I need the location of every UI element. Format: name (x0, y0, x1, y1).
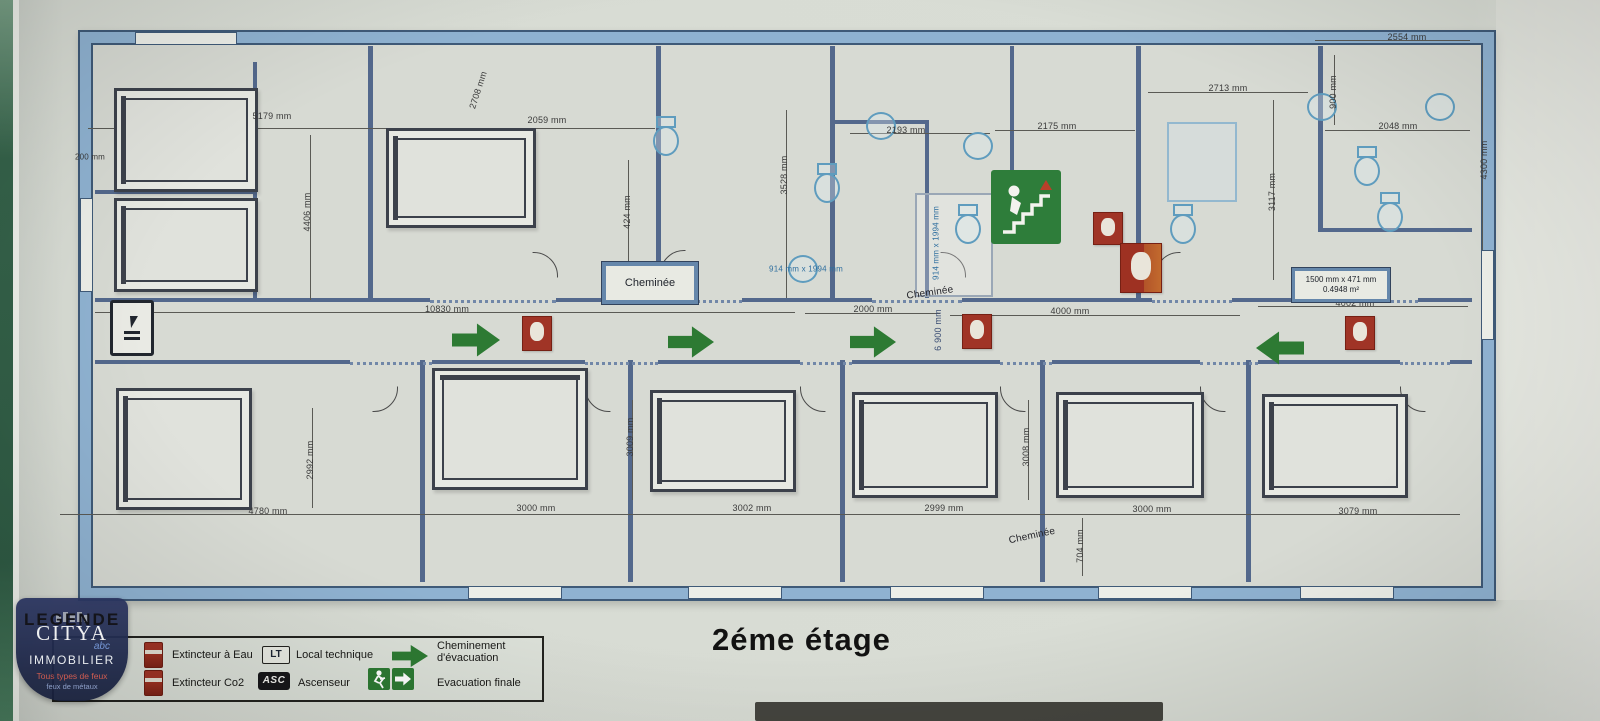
bed-mattress (862, 402, 988, 488)
window (688, 586, 782, 599)
dimension-label: 2000 mm (854, 304, 893, 314)
logo-tagline-1: Tous types de feux (37, 671, 108, 681)
evacuation-arrow-right (850, 325, 896, 359)
door-opening-dots (350, 362, 432, 365)
dimension-label: 424 mm (622, 195, 632, 229)
bed-pillow (123, 396, 128, 502)
interior-wall (1318, 46, 1323, 232)
dimension-label: 2713 mm (1209, 83, 1248, 93)
extinguisher-co2-icon (144, 670, 163, 696)
door-opening-dots (1200, 362, 1258, 365)
lightning-bolt-icon (126, 316, 138, 328)
window (1098, 586, 1192, 599)
dimension-label: 6 900 mm (933, 309, 943, 351)
photo-light-corner (1496, 0, 1600, 600)
dimension-label: 4406 mm (302, 193, 312, 232)
door-swing-arc (350, 364, 398, 412)
room-area-label-box: 1500 mm x 471 mm 0.4948 m² (1292, 268, 1390, 302)
logo-abc: abc (94, 643, 110, 651)
bed-pillow (657, 398, 662, 484)
fixture-bowl (963, 132, 993, 160)
bed-pillow (859, 400, 864, 490)
bed-pillow (1269, 402, 1274, 490)
window (80, 198, 93, 292)
interior-wall (420, 360, 425, 582)
bed-mattress (660, 400, 786, 482)
dimension-label: 3079 mm (1339, 506, 1378, 516)
dimension-label: 200 mm (75, 153, 105, 162)
cheminee-label-box: Cheminée (602, 262, 698, 304)
bed (114, 88, 258, 192)
panel-line (124, 331, 140, 334)
bed (386, 128, 536, 228)
dimension-label: 914 mm x 1994 mm (932, 206, 941, 280)
interior-wall (1418, 298, 1472, 302)
floor-title: 2éme étage (712, 622, 891, 658)
extinguisher-marker (522, 316, 552, 351)
legend-label-local-technique: Local technique (296, 649, 373, 661)
dimension-label: 900 mm (1328, 75, 1338, 109)
dimension-label: 3002 mm (733, 503, 772, 513)
window (1300, 586, 1394, 599)
legend-label-evacuation-finale: Evacuation finale (437, 677, 521, 689)
dimension-label: 10830 mm (425, 304, 469, 314)
bed-mattress (442, 378, 578, 480)
bed (1056, 392, 1204, 498)
evacuation-arrow-right (668, 325, 714, 359)
exit-arrow-icon (392, 668, 414, 690)
window (1481, 250, 1494, 340)
dimension-line (950, 315, 1240, 316)
door-opening-dots (585, 362, 658, 365)
photo-bottom-dark-band (755, 702, 1163, 721)
bed-mattress (1066, 402, 1194, 488)
bed (114, 198, 258, 292)
sink-fixture (788, 255, 818, 295)
photo-edge-green-strip (0, 0, 13, 721)
interior-wall (962, 298, 1152, 302)
legend-title: LEGENDE (24, 610, 120, 630)
extinguisher-water-icon (144, 642, 163, 668)
bed-pillow (440, 375, 580, 380)
dimension-label: 914 mm x 1994 mm (769, 265, 843, 274)
fixture-bowl (1425, 93, 1455, 121)
logo-subtitle: IMMOBILIER (29, 653, 115, 667)
legend-label-cheminement: Cheminement d'évacuation (437, 640, 521, 664)
door-swing-arc (1200, 364, 1248, 412)
stairs-evacuation-sign (991, 170, 1061, 244)
window (468, 586, 562, 599)
bed (1262, 394, 1408, 498)
toilet-fixture (812, 163, 842, 203)
extinguisher-marker (1120, 243, 1162, 293)
door-opening-dots (1152, 300, 1232, 303)
interior-wall (1246, 360, 1251, 582)
fixture-bowl (1170, 214, 1196, 244)
evacuation-arrow-right (452, 322, 500, 358)
plan-overlay: 200 mm5179 mm2059 mm2708 mm2193 mm2175 m… (0, 0, 1600, 721)
dimension-label: 2999 mm (925, 503, 964, 513)
dimension-label: 3528 mm (779, 156, 789, 195)
sink-fixture (963, 132, 993, 172)
interior-wall (658, 360, 800, 364)
interior-wall (1258, 360, 1400, 364)
door-opening-dots (800, 362, 852, 365)
toilet-fixture (1375, 192, 1405, 232)
dimension-label: 3000 mm (517, 503, 556, 513)
dimension-label: 2175 mm (1038, 121, 1077, 131)
door-opening-dots (1400, 362, 1450, 365)
door-opening-dots (430, 300, 556, 303)
electrical-panel-icon (110, 300, 154, 356)
shower-fixture (1167, 122, 1237, 202)
interior-wall (1450, 360, 1472, 364)
bed (432, 368, 588, 490)
local-technique-icon: LT (262, 646, 290, 664)
bed-mattress (124, 208, 248, 282)
toilet-fixture (1168, 204, 1198, 244)
bed-pillow (121, 96, 126, 184)
evacuation-floor-plan: 200 mm5179 mm2059 mm2708 mm2193 mm2175 m… (0, 0, 1600, 721)
door-opening-dots (1000, 362, 1052, 365)
toilet-fixture (1352, 146, 1382, 186)
sink-fixture (1425, 93, 1455, 133)
running-man-icon (368, 668, 390, 690)
toilet-fixture (651, 116, 681, 156)
fixture-bowl (814, 173, 840, 203)
dimension-label: 3009 mm (625, 418, 635, 457)
door-swing-arc (585, 364, 633, 412)
interior-wall (1010, 46, 1014, 172)
bed-pillow (393, 136, 398, 220)
panel-line (124, 337, 140, 340)
dimension-label: 4000 mm (1051, 306, 1090, 316)
interior-wall (840, 360, 845, 582)
dimension-label: Cheminée (1008, 526, 1056, 547)
cheminee-text: Cheminée (625, 277, 675, 289)
dimension-label: 2059 mm (528, 115, 567, 125)
fixture-bowl (653, 126, 679, 156)
extinguisher-marker (962, 314, 992, 349)
legend-label-ascenseur: Ascenseur (298, 677, 350, 689)
bed (116, 388, 252, 510)
dimension-label: 2708 mm (467, 70, 489, 110)
interior-wall (852, 360, 1000, 364)
interior-wall (95, 360, 350, 364)
extinguisher-marker (1345, 316, 1375, 350)
dimension-label: 2048 mm (1379, 121, 1418, 131)
interior-wall (432, 360, 585, 364)
bed-pillow (121, 206, 126, 284)
legend-label-extincteur-co2: Extincteur Co2 (172, 677, 244, 689)
logo-tagline-2: feux de métaux (46, 682, 97, 691)
door-swing-arc (510, 252, 558, 300)
bed-mattress (124, 98, 248, 182)
dimension-label: 3117 mm (1267, 173, 1277, 211)
room-size-text: 1500 mm x 471 mm (1306, 275, 1377, 285)
window (890, 586, 984, 599)
dimension-label: 5179 mm (253, 111, 292, 121)
bed-mattress (1272, 404, 1398, 488)
toilet-fixture (953, 204, 983, 244)
bed (650, 390, 796, 492)
interior-wall (742, 298, 872, 302)
door-opening-dots (872, 300, 962, 303)
dimension-label: 2554 mm (1388, 32, 1427, 42)
dimension-label: 3000 mm (1133, 504, 1172, 514)
final-exit-icon (368, 668, 414, 690)
fixture-bowl (1354, 156, 1380, 186)
dimension-label: 2992 mm (305, 441, 315, 480)
dimension-label: 704 mm (1075, 529, 1085, 563)
legend-label-extincteur-eau: Extincteur à Eau (172, 649, 253, 661)
fixture-bowl (955, 214, 981, 244)
dimension-label: 2193 mm (887, 125, 926, 135)
fixture-bowl (1377, 202, 1403, 232)
dimension-label: 3008 mm (1021, 428, 1031, 467)
window (135, 32, 237, 45)
door-swing-arc (1155, 252, 1203, 300)
dimension-label: 4300 mm (1479, 141, 1489, 180)
interior-wall (1040, 360, 1045, 582)
interior-wall (368, 46, 373, 300)
bed-mattress (396, 138, 526, 218)
interior-wall (1052, 360, 1200, 364)
extinguisher-marker (1093, 212, 1123, 245)
room-area-text: 0.4948 m² (1323, 285, 1359, 295)
bed-mattress (126, 398, 242, 500)
bed (852, 392, 998, 498)
dimension-label: 4780 mm (249, 506, 288, 516)
bed-pillow (1063, 400, 1068, 490)
elevator-icon: ASC (258, 672, 290, 690)
